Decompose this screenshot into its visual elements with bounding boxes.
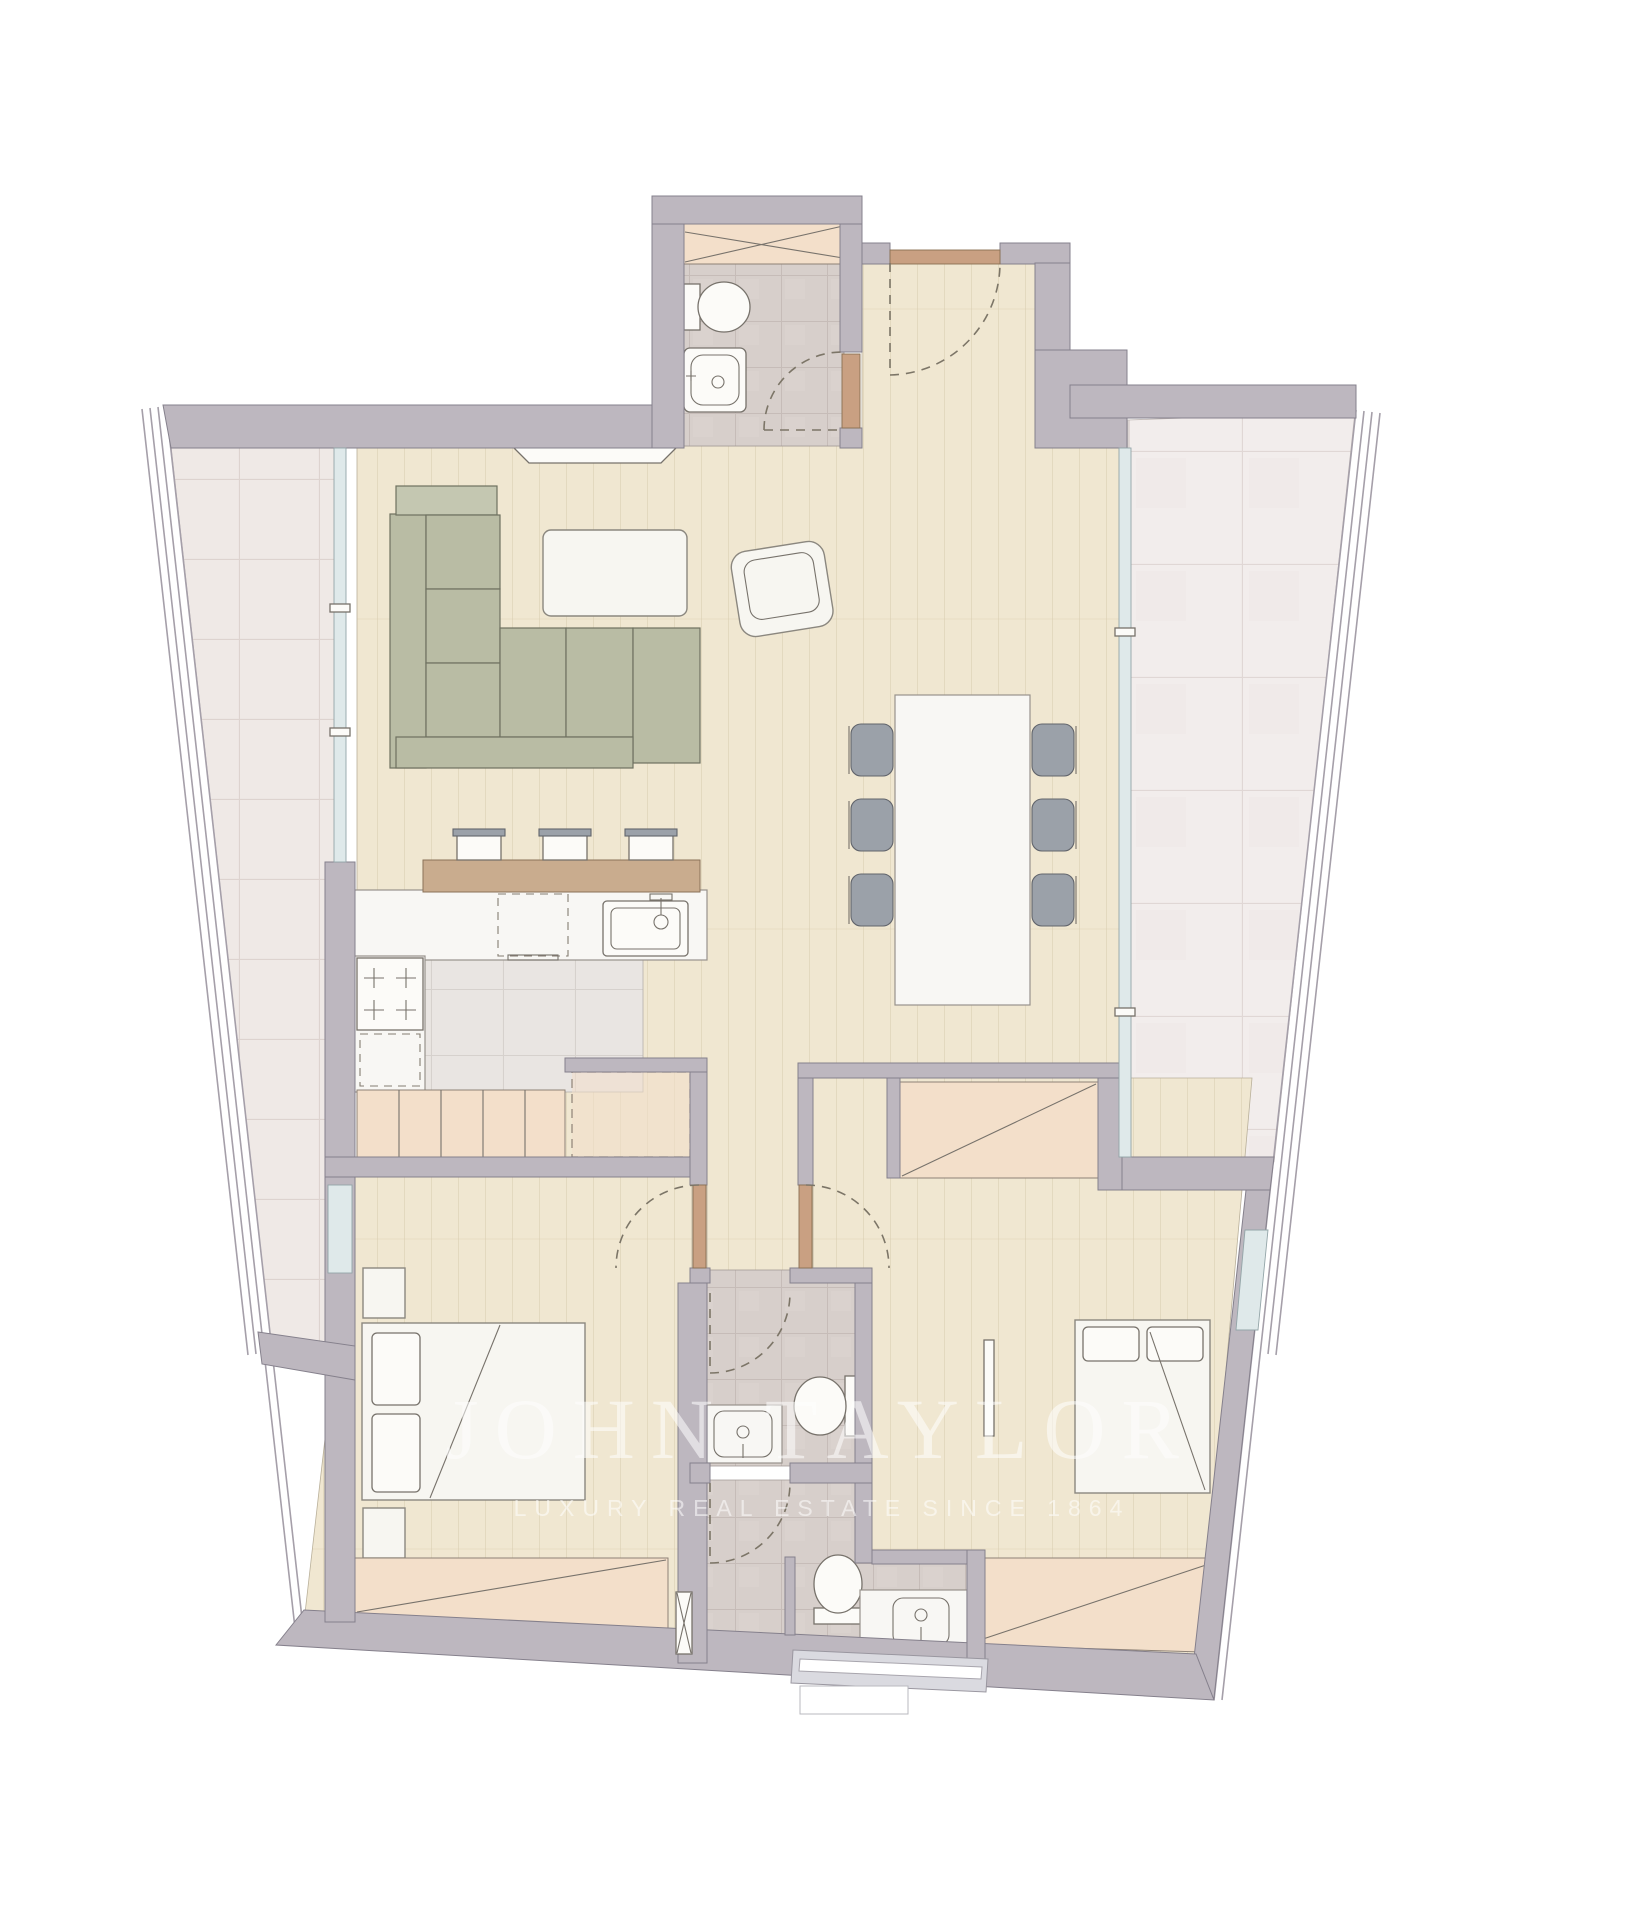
bar-stool (453, 829, 505, 860)
wall-segment (785, 1557, 795, 1635)
curtain-pelmet (513, 447, 677, 463)
wall-segment (967, 1550, 985, 1665)
fridge-outline (572, 1072, 690, 1157)
kitchen-bar-top (423, 860, 700, 892)
wall-segment (790, 1268, 872, 1283)
glazing-handle (1115, 1008, 1135, 1016)
floorplan-drawing: JOHN TAYLOR LUXURY REAL ESTATE SINCE 186… (0, 0, 1649, 1920)
nightstand (363, 1508, 405, 1558)
glazing-handle (330, 604, 350, 612)
wardrobe (900, 1082, 1098, 1178)
bottom-window (791, 1650, 988, 1714)
living-east-glazing (1119, 448, 1131, 1157)
bedroom1-window (328, 1185, 352, 1273)
wall-segment (840, 224, 862, 352)
wall-segment (862, 243, 890, 264)
sink (684, 348, 746, 412)
threshold (842, 354, 860, 428)
kitchen-sink (603, 894, 688, 956)
chair (851, 724, 893, 776)
terrace-right-floor (1128, 412, 1355, 1162)
bar-stool (625, 829, 677, 860)
threshold (890, 250, 1000, 264)
chair (1032, 724, 1074, 776)
door-leaf (799, 1185, 812, 1268)
wall-segment (1098, 1078, 1122, 1190)
watermark-title: JOHN TAYLOR (445, 1381, 1195, 1477)
glazing-handle (1115, 628, 1135, 636)
armchair (729, 539, 835, 639)
watermark: JOHN TAYLOR LUXURY REAL ESTATE SINCE 186… (445, 1381, 1195, 1521)
stove (357, 958, 423, 1030)
wall-segment (652, 196, 862, 224)
wall-segment (1000, 243, 1070, 264)
watermark-subtitle: LUXURY REAL ESTATE SINCE 1864 (514, 1495, 1131, 1521)
wall-segment (652, 196, 684, 448)
wall-segment (690, 1268, 710, 1283)
shelf-unit (684, 224, 844, 264)
chair (851, 799, 893, 851)
wardrobe (972, 1558, 1221, 1652)
wall-segment (798, 1063, 1127, 1078)
wall-segment (325, 1157, 690, 1177)
pillow (372, 1333, 420, 1405)
floorplan-page: JOHN TAYLOR LUXURY REAL ESTATE SINCE 186… (0, 0, 1649, 1920)
wall-segment (690, 1072, 707, 1185)
wall-segment (872, 1550, 967, 1564)
toilet (814, 1555, 862, 1624)
pillow (1083, 1327, 1139, 1361)
chair (851, 874, 893, 926)
chair (1032, 874, 1074, 926)
wall-segment (163, 405, 684, 448)
door-leaf (693, 1185, 706, 1268)
wall-segment (840, 428, 862, 448)
exterior-step (800, 1686, 908, 1714)
wall-segment (1070, 385, 1356, 418)
toilet (684, 282, 750, 332)
window-column-symbol (676, 1592, 692, 1654)
living-west-glazing (334, 448, 346, 862)
coffee-table (543, 530, 687, 616)
pillow (1147, 1327, 1203, 1361)
chair (1032, 799, 1074, 851)
dining-table (895, 695, 1030, 1005)
nightstand (363, 1268, 405, 1318)
wall-segment (565, 1058, 707, 1072)
wall-segment (887, 1078, 900, 1178)
terrace-left-floor (171, 446, 336, 1352)
glazing-handle (330, 728, 350, 736)
wall-segment (1120, 1157, 1274, 1190)
bar-stools (453, 829, 677, 860)
bar-stool (539, 829, 591, 860)
pillow (372, 1414, 420, 1492)
wall-segment (798, 1078, 813, 1185)
